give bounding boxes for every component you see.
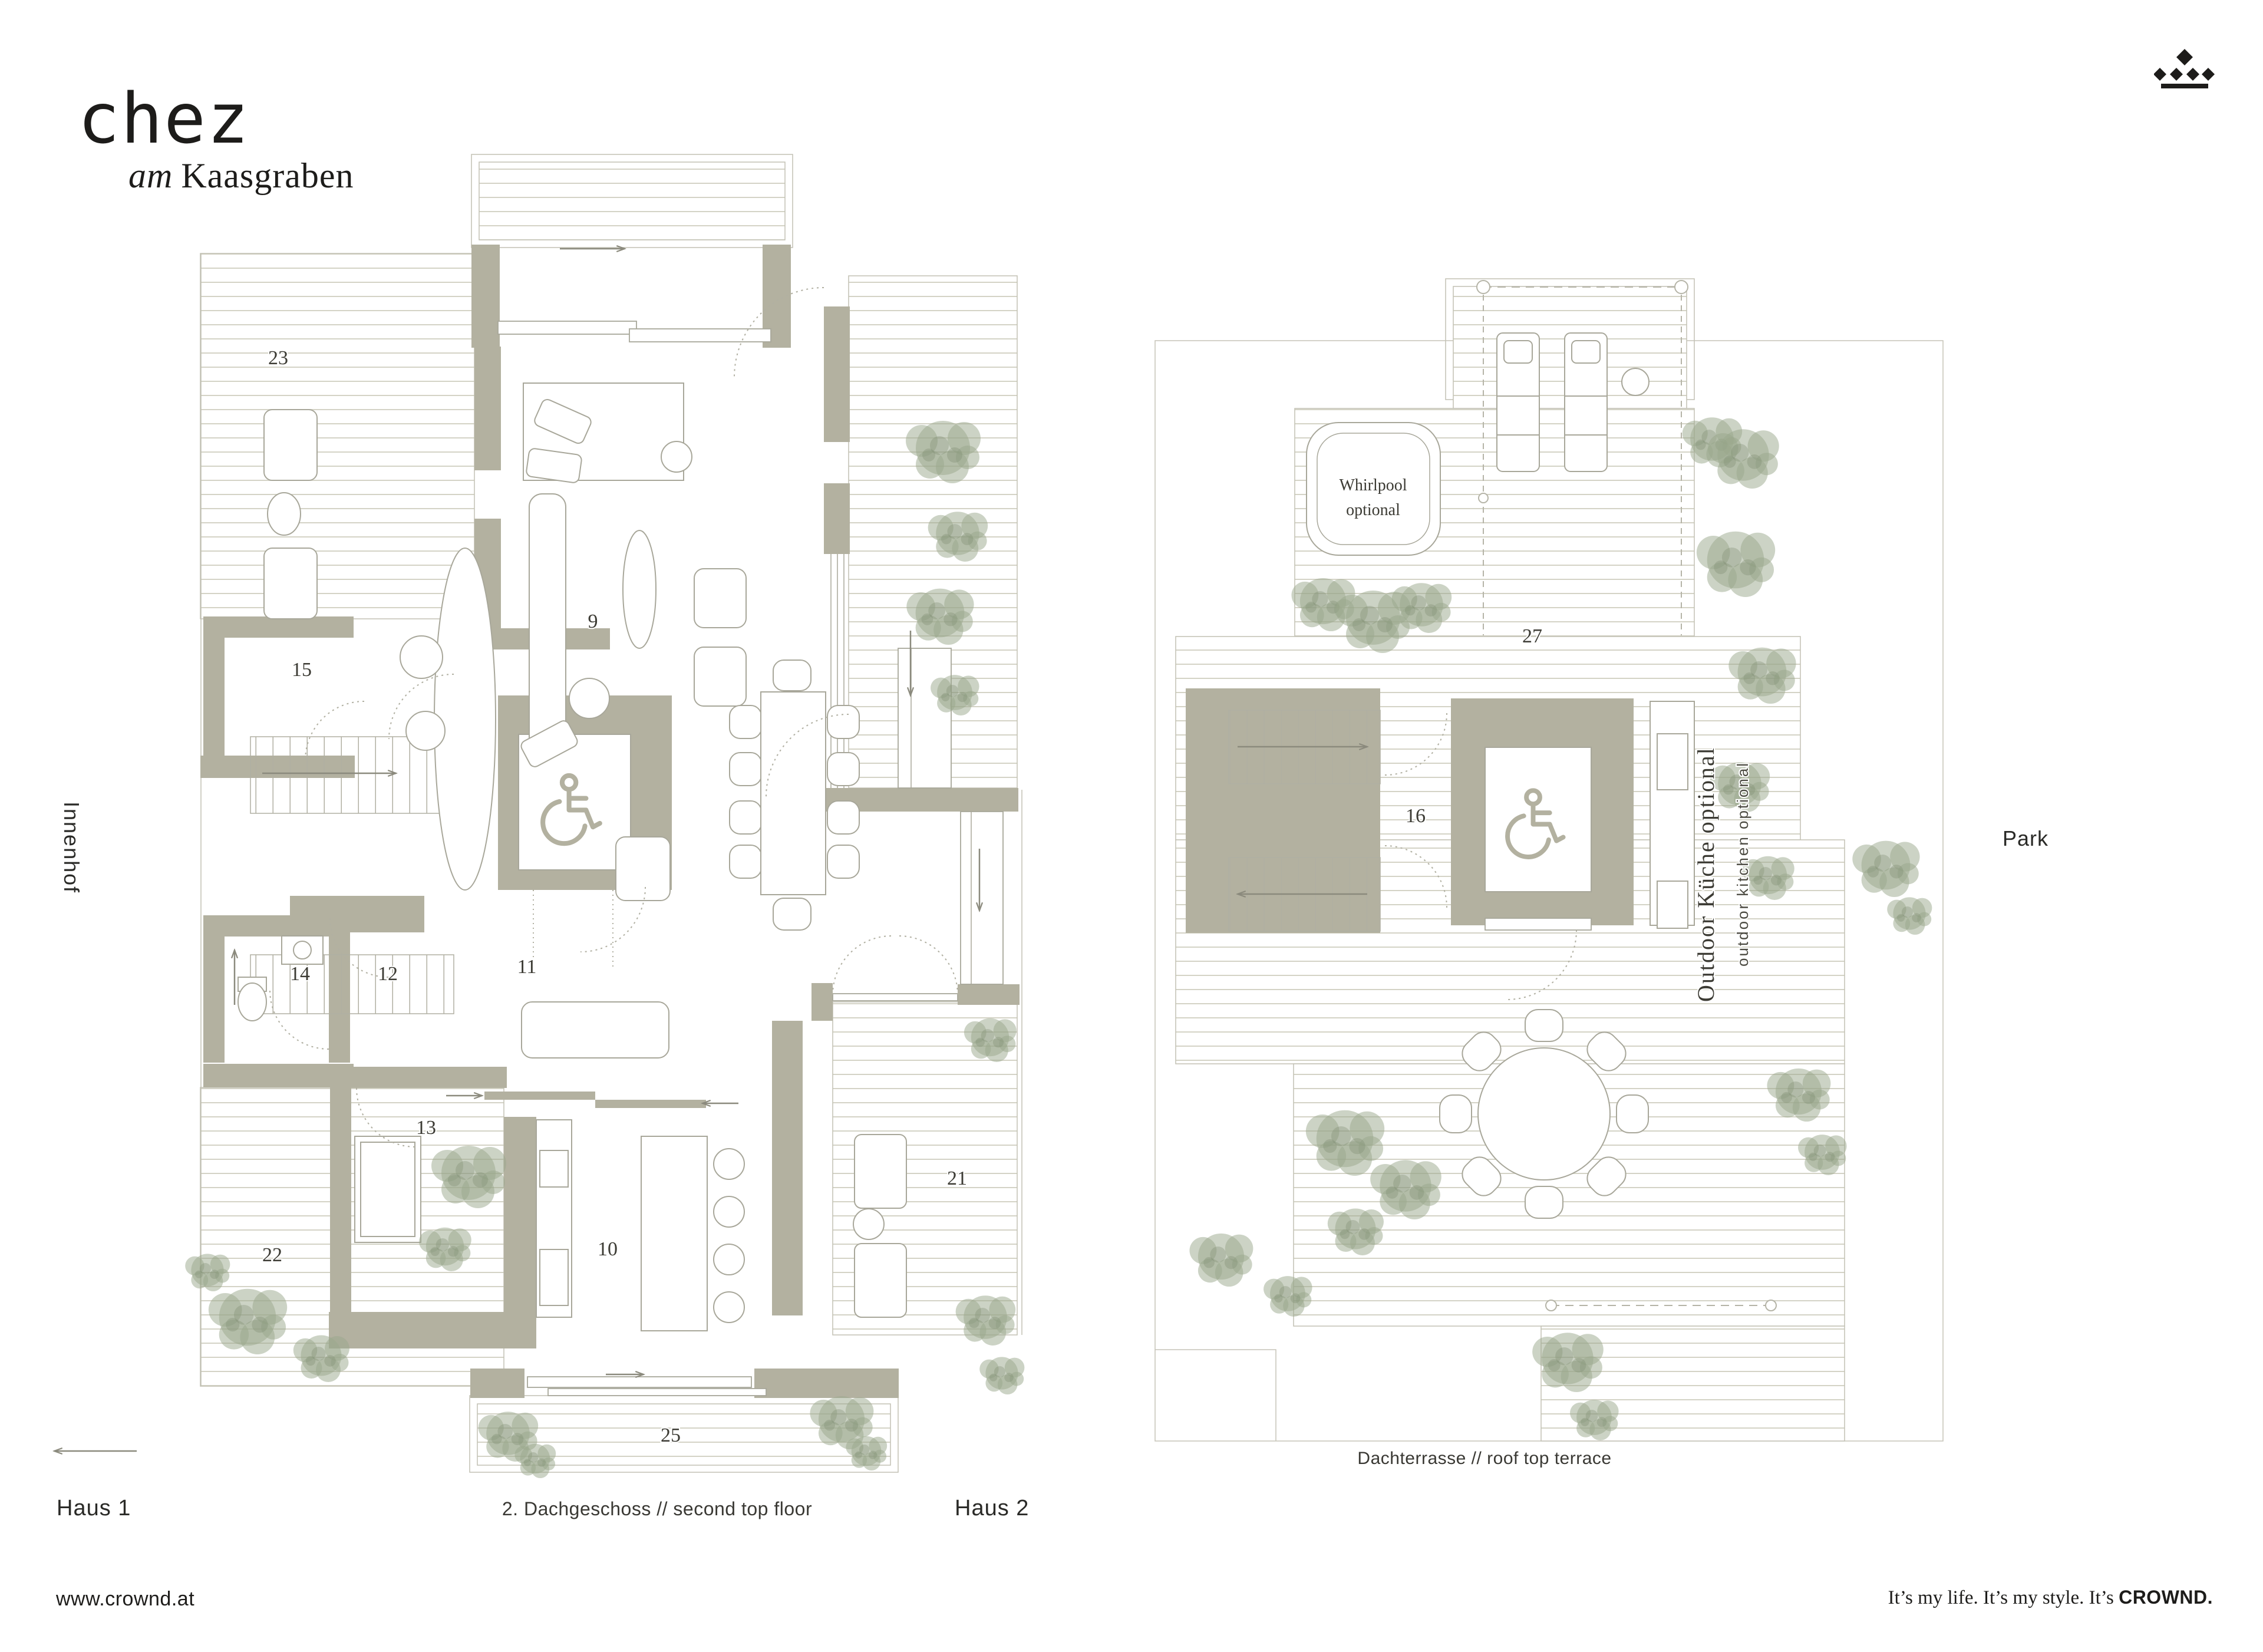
left-plan-caption: 2. Dachgeschoss // second top floor (502, 1498, 812, 1520)
room-label-15: 15 (292, 659, 312, 681)
right-floor-plan: Whirlpool optional 27 16 Outdoor Küche o… (1155, 279, 1943, 1441)
area-label-16: 16 (1406, 805, 1426, 827)
room-label-22: 22 (262, 1244, 282, 1266)
brand-logo: chez (78, 84, 250, 153)
park-label: Park (2003, 826, 2048, 851)
right-elevator-car (1485, 747, 1591, 892)
haus2-label: Haus 2 (955, 1496, 1029, 1521)
room-label-14: 14 (290, 963, 310, 985)
room-label-12: 12 (378, 963, 398, 985)
website-link[interactable]: www.crownd.at (56, 1588, 194, 1611)
crownd-crown-icon (2154, 46, 2219, 93)
brand-logo-name: Kaasgraben (181, 156, 354, 195)
left-hall-slider (484, 1092, 706, 1108)
right-elevator-door (1485, 918, 1591, 930)
footer-tagline: It’s my life. It’s my style. It’s CROWND… (1888, 1587, 2213, 1609)
outdoor-kitchen-label-de: Outdoor Küche optional (1693, 747, 1719, 1002)
round-dining-set (1440, 1010, 1648, 1218)
left-floor-plan: 23 15 9 14 12 11 13 22 10 21 25 (185, 154, 1024, 1478)
area-label-27: 27 (1522, 625, 1542, 647)
room-label-11: 11 (517, 956, 537, 978)
brand-logo-prefix: am (128, 156, 173, 195)
room-label-21: 21 (947, 1168, 967, 1189)
brand-logo-subtitle: amKaasgraben (128, 158, 354, 193)
left-plan-stairs (250, 737, 454, 1014)
outdoor-kitchen-label-en: outdoor kitchen optional (1734, 761, 1751, 967)
room-label-10: 10 (598, 1238, 618, 1260)
whirlpool-label-line1: Whirlpool (1339, 476, 1407, 494)
room-label-9: 9 (588, 611, 598, 632)
footer-brand-name: CROWND. (2119, 1587, 2213, 1608)
right-plan-caption: Dachterrasse // roof top terrace (1357, 1449, 1611, 1469)
whirlpool-label-line2: optional (1346, 501, 1400, 519)
room-label-13: 13 (416, 1117, 436, 1139)
floor-plan-canvas: 23 15 9 14 12 11 13 22 10 21 25 (0, 0, 2263, 1652)
brochure-page: 23 15 9 14 12 11 13 22 10 21 25 (0, 0, 2263, 1652)
innenhof-label: Innenhof (59, 802, 84, 893)
outdoor-kitchen-counter (1650, 701, 1694, 928)
room-label-25: 25 (661, 1425, 681, 1446)
room-label-23: 23 (268, 347, 288, 369)
roof-step (1155, 1350, 1276, 1441)
left-elevator-tracks (533, 890, 613, 967)
haus1-label: Haus 1 (57, 1496, 131, 1521)
footer-tagline-text: It’s my life. It’s my style. It’s (1888, 1587, 2114, 1608)
